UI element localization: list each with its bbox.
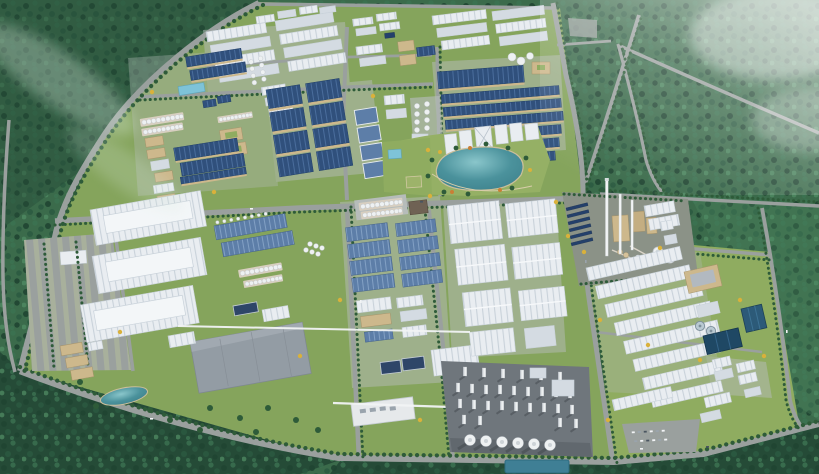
garden-pond [388, 149, 402, 159]
plaza [406, 176, 422, 188]
gatehouse-building [60, 250, 87, 265]
haze-topright [540, 0, 819, 195]
aerial-scene: Aerial 3D architectural rendering of a l… [0, 0, 819, 474]
cooling-basin [505, 460, 569, 473]
industrial-park-render: Aerial 3D architectural rendering of a l… [0, 0, 819, 474]
central-lake [436, 147, 523, 190]
southeast-parking-lot [622, 419, 700, 453]
